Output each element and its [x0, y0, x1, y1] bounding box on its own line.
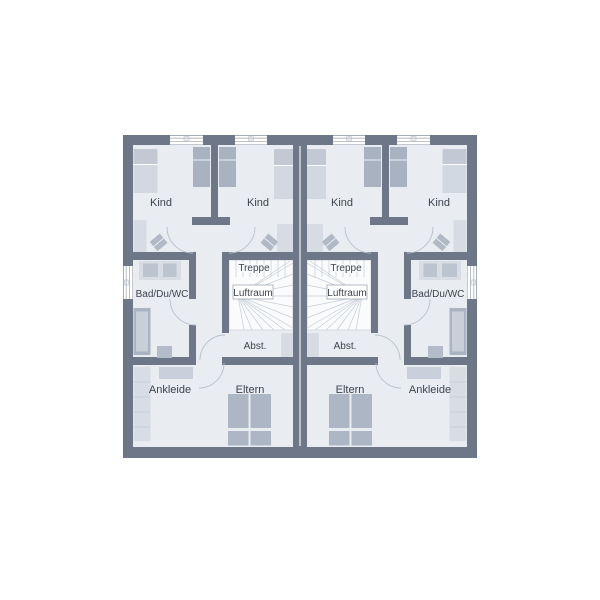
room-label-kind-3: Kind: [331, 197, 353, 209]
room-label-abst-right: Abst.: [334, 341, 357, 352]
floorplan-page: Kind Kind Kind Kind Treppe Treppe Luftra…: [0, 0, 600, 600]
room-label-luftraum-left: Luftraum: [233, 288, 272, 299]
room-label-abst-left: Abst.: [244, 341, 267, 352]
room-label-ankleide-right: Ankleide: [409, 384, 451, 396]
party-wall: [293, 135, 307, 458]
room-label-luftraum-right: Luftraum: [327, 288, 366, 299]
room-label-bad-left: Bad/Du/WC: [136, 289, 189, 300]
room-label-eltern-left: Eltern: [236, 384, 265, 396]
room-label-treppe-right: Treppe: [330, 263, 362, 274]
room-label-kind-4: Kind: [428, 197, 450, 209]
room-label-kind-1: Kind: [150, 197, 172, 209]
room-label-ankleide-left: Ankleide: [149, 384, 191, 396]
room-label-kind-2: Kind: [247, 197, 269, 209]
room-label-treppe-left: Treppe: [238, 263, 270, 274]
floorplan-canvas: Kind Kind Kind Kind Treppe Treppe Luftra…: [0, 0, 600, 600]
room-label-bad-right: Bad/Du/WC: [412, 289, 465, 300]
room-label-eltern-right: Eltern: [336, 384, 365, 396]
